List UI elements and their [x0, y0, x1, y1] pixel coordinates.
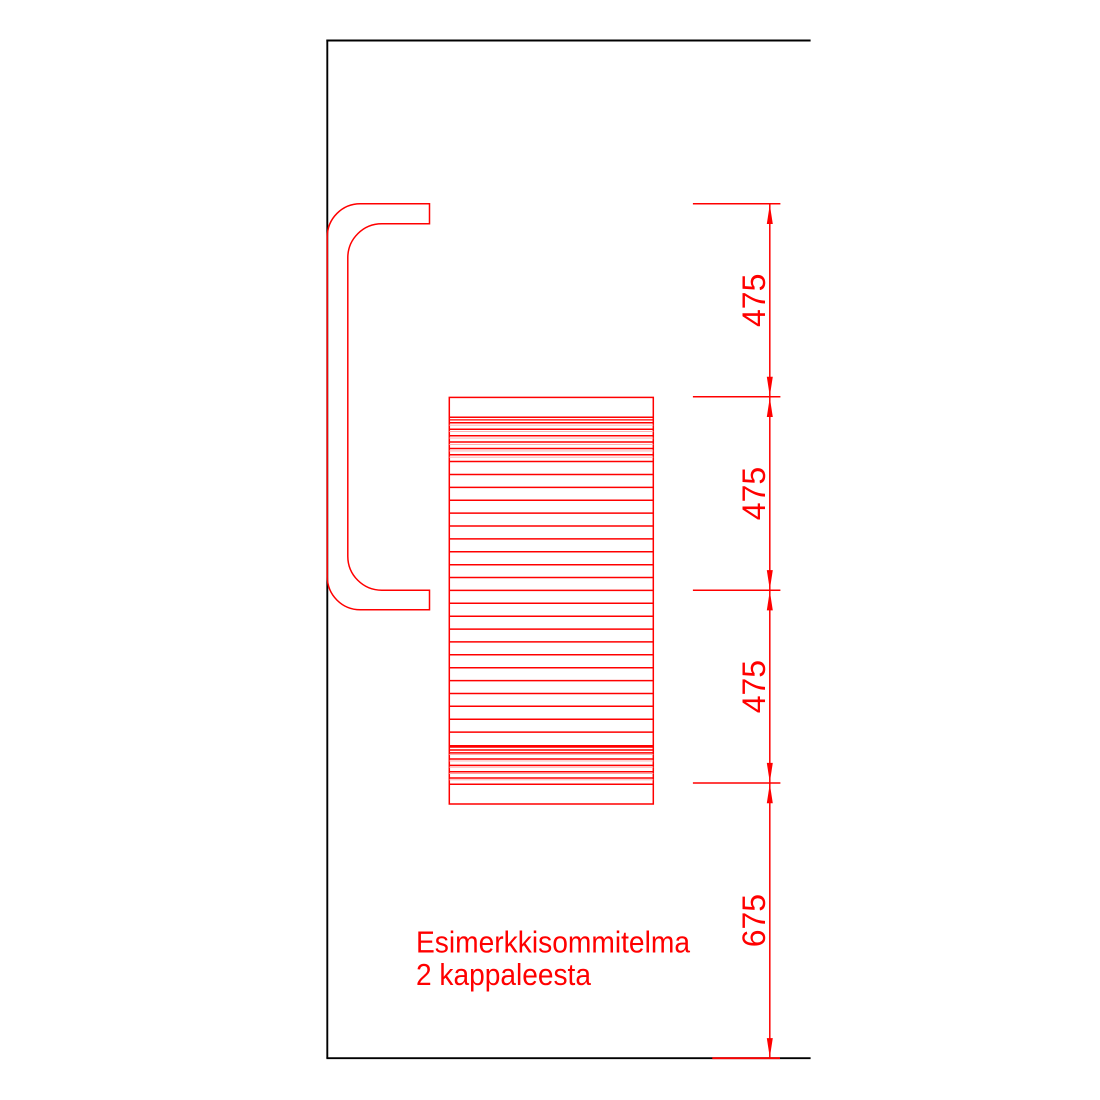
- svg-text:475: 475: [736, 467, 772, 520]
- svg-text:Esimerkkisommitelma: Esimerkkisommitelma: [416, 925, 690, 959]
- svg-text:475: 475: [736, 274, 772, 327]
- svg-text:675: 675: [736, 894, 772, 947]
- svg-text:2 kappaleesta: 2 kappaleesta: [416, 958, 591, 992]
- svg-text:475: 475: [736, 660, 772, 713]
